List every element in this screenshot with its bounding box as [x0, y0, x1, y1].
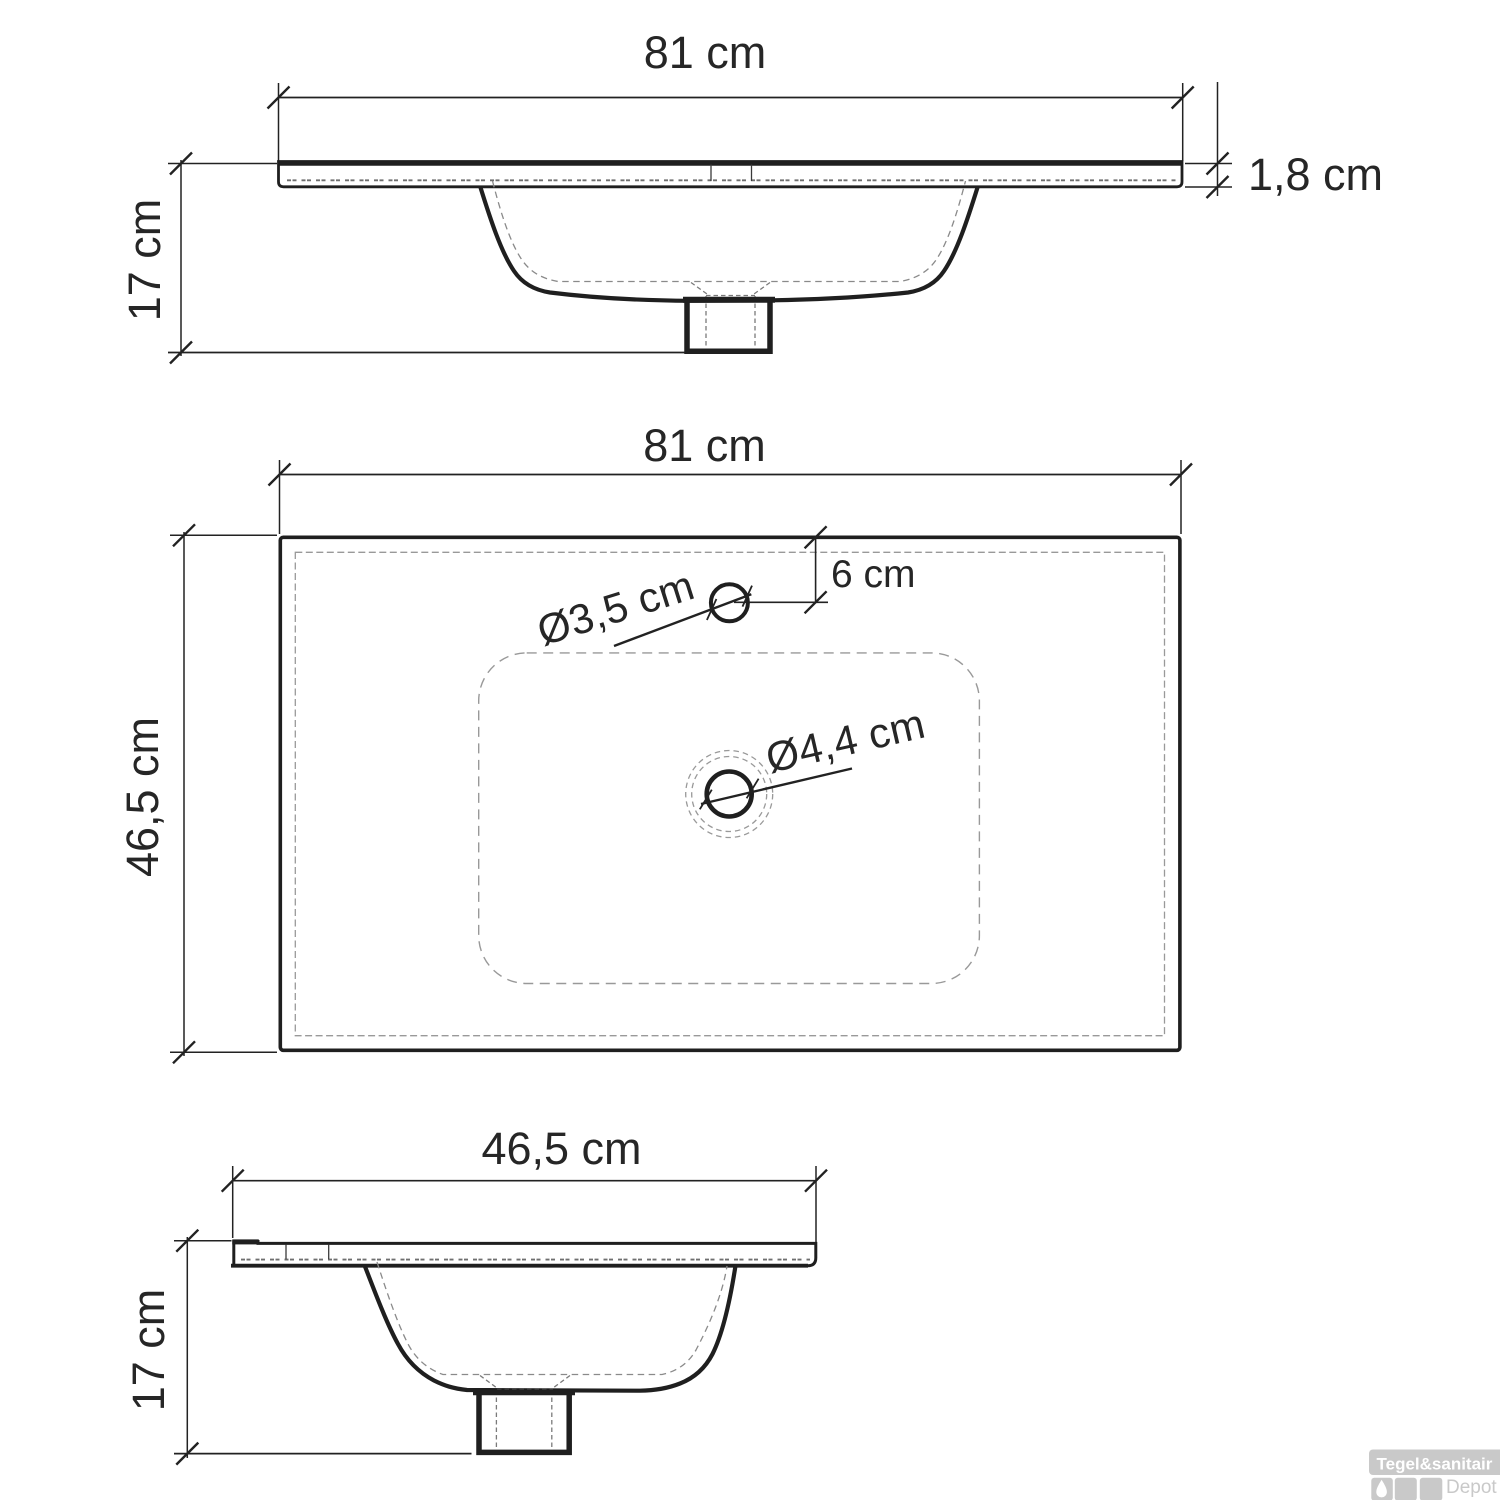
- svg-text:Tegel&sanitair: Tegel&sanitair: [1377, 1455, 1493, 1474]
- svg-text:6 cm: 6 cm: [831, 553, 916, 596]
- svg-text:81 cm: 81 cm: [643, 420, 766, 471]
- svg-text:46,5 cm: 46,5 cm: [481, 1123, 641, 1174]
- svg-text:46,5 cm: 46,5 cm: [117, 717, 168, 877]
- svg-text:17 cm: 17 cm: [119, 199, 170, 322]
- svg-text:Depot: Depot: [1446, 1477, 1497, 1498]
- svg-text:81 cm: 81 cm: [644, 27, 767, 78]
- svg-text:17 cm: 17 cm: [123, 1289, 174, 1412]
- svg-text:1,8 cm: 1,8 cm: [1248, 149, 1383, 200]
